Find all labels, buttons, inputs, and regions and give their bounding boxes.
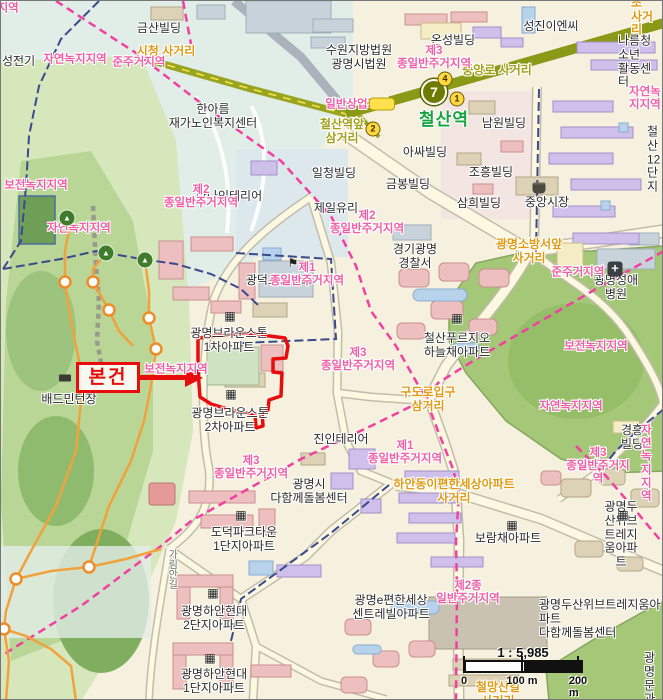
subject-property-marker: 본건 — [76, 362, 140, 393]
market-icon — [533, 183, 546, 194]
hospital-icon: + — [608, 262, 623, 277]
station-exit4-badge: 4 — [438, 72, 453, 87]
trailhead-icon: ▲ — [59, 210, 76, 227]
station-exit1-badge: 1 — [450, 92, 465, 107]
scale-tick-100: 100 m — [506, 675, 537, 687]
station-exit2-badge: 2 — [366, 122, 381, 137]
scale-ratio: 1 : 5,985 — [497, 645, 548, 660]
map-base-layers — [1, 1, 663, 700]
scale-tick-200: 200 m — [569, 675, 587, 699]
map-canvas[interactable]: 금산빌딩 수원지방법원 광명시법원 온성빌딩 성진이엔씨 나름청소년 활동센터 … — [0, 0, 663, 700]
badminton-icon — [59, 375, 71, 382]
trailhead-icon: ▲ — [98, 245, 115, 262]
scale-tick-0: 0 — [461, 675, 467, 687]
station-code-badge — [369, 98, 395, 111]
trailhead-icon: ▲ — [137, 252, 154, 269]
scale-bar — [464, 660, 583, 673]
